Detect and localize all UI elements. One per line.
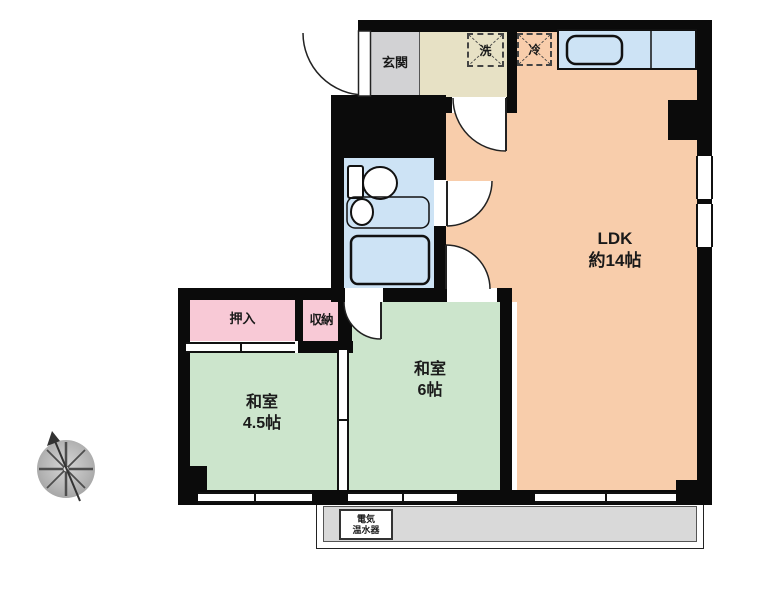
washitsu6-name: 和室: [390, 360, 470, 381]
shuno-text: 収納: [304, 312, 338, 328]
ldk-name: LDK: [555, 228, 675, 250]
washitsu45-label: 和室 4.5帖: [222, 393, 302, 435]
washitsu45-name: 和室: [222, 393, 302, 414]
fridge-space: 冷: [517, 33, 552, 66]
genkan-text: 玄関: [371, 55, 419, 72]
fridge-label: 冷: [527, 41, 541, 58]
floor-plan: 電気 温水器: [0, 0, 775, 600]
ldk-size: 約14帖: [555, 250, 675, 272]
washitsu6-label: 和室 6帖: [390, 360, 470, 402]
washitsu6-size: 6帖: [390, 381, 470, 402]
shuno-label: 収納: [304, 312, 338, 328]
genkan-label: 玄関: [371, 55, 419, 72]
entrance-door-leaf: [359, 31, 371, 96]
washer-space: 洗: [467, 33, 504, 67]
door-swings: [0, 0, 775, 600]
washroom-door-swing: [453, 98, 506, 151]
washer-label: 洗: [478, 42, 492, 59]
oshiire-label: 押入: [205, 311, 280, 328]
entrance-door-swing: [303, 33, 365, 95]
ldk-label: LDK 約14帖: [555, 228, 675, 272]
oshiire-text: 押入: [205, 311, 280, 328]
washitsu45-size: 4.5帖: [222, 414, 302, 435]
